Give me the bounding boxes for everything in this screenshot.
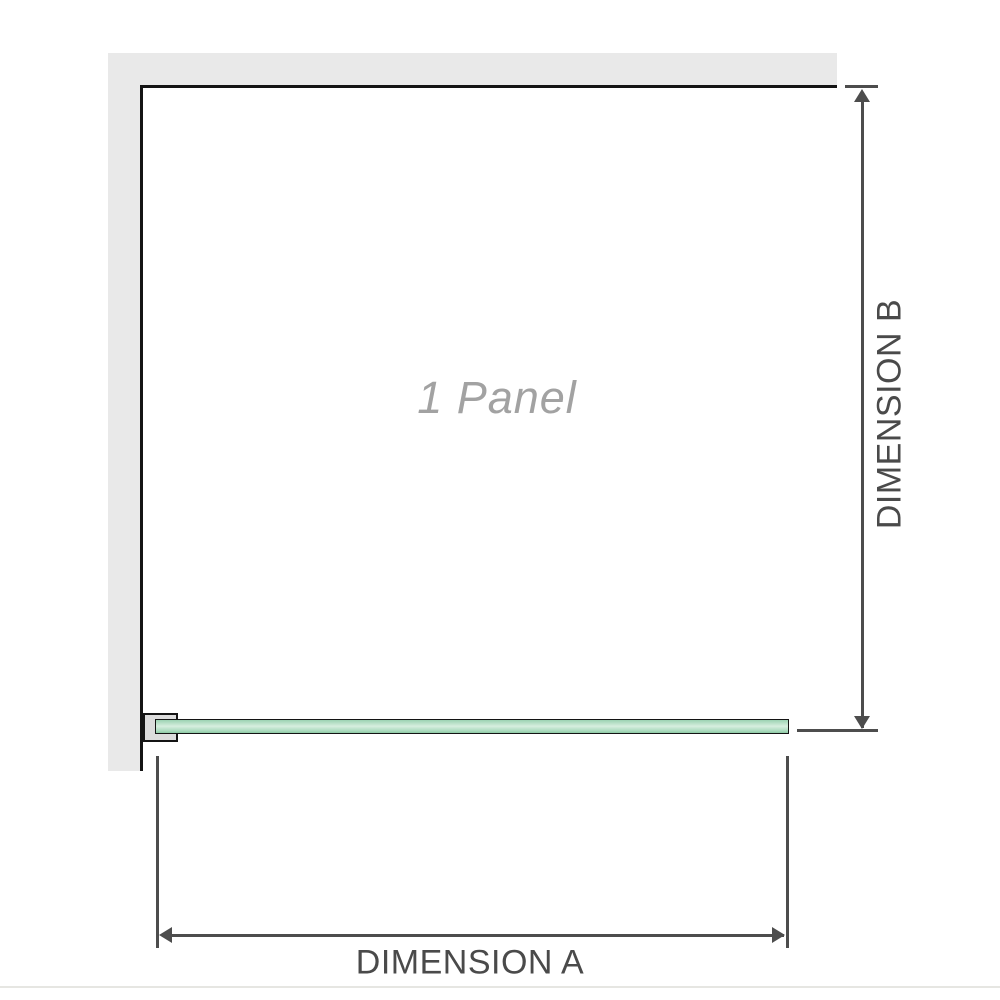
panel-count-label: 1 Panel — [417, 372, 577, 424]
dimension-b-line — [861, 92, 864, 728]
wall-left-strip — [108, 53, 141, 771]
dimension-a-arrowhead-right-icon — [772, 927, 785, 943]
dimension-b-arrowhead-down-icon — [854, 716, 870, 729]
shower-panel-dimension-diagram: 1 Panel DIMENSION B DIMENSION A — [0, 0, 1000, 1000]
panel-area-left-edge — [140, 85, 143, 771]
dimension-a-line — [162, 934, 784, 937]
wall-top-strip — [108, 53, 837, 86]
dimension-b-top-tick — [845, 85, 878, 88]
image-bottom-edge-line — [0, 986, 1000, 988]
dimension-a-arrowhead-left-icon — [159, 927, 172, 943]
dimension-b-bottom-tick — [797, 729, 878, 732]
dimension-a-right-extension-line — [786, 756, 789, 948]
panel-area-top-edge — [140, 85, 837, 88]
dimension-a-label: DIMENSION A — [356, 944, 584, 983]
dimension-a-left-extension-line — [156, 756, 159, 948]
dimension-b-arrowhead-up-icon — [854, 89, 870, 102]
glass-panel-bar — [155, 719, 789, 734]
dimension-b-label: DIMENSION B — [871, 299, 910, 529]
